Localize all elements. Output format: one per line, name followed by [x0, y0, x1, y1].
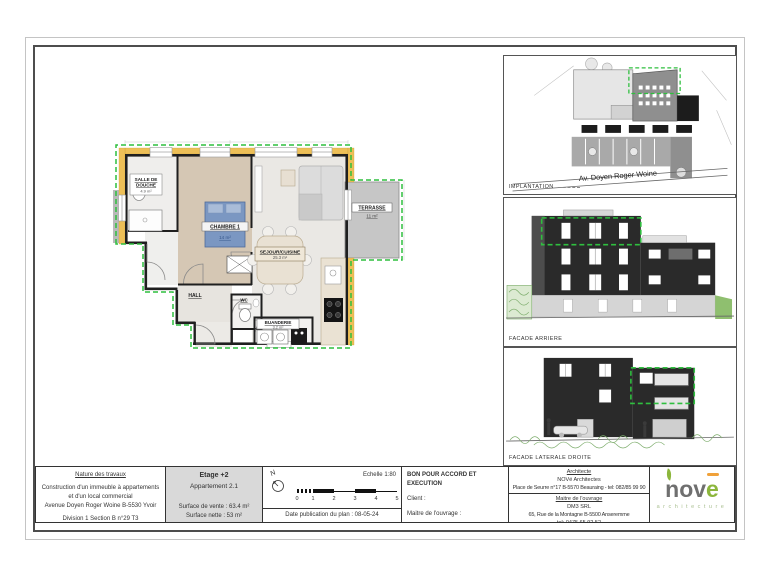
title-block: Nature des travaux Construction d'un imm…	[35, 466, 735, 523]
nature-line: Avenue Doyen Roger Woine B-5530 Yvoir	[38, 502, 163, 511]
facade-arriere-drawing	[504, 198, 736, 329]
room-name: DOUCHE	[136, 183, 156, 188]
room-area: 11 m²	[366, 214, 378, 219]
room-name: BUANDERIE	[265, 320, 292, 325]
street-name-label: Av. Doyen Roger Woine	[578, 169, 657, 183]
apartment-number: Appartement 2.1	[168, 482, 260, 492]
facade-laterale-box: FACADE LATERALE DROITE	[503, 347, 737, 466]
room-label-buanderie: BUANDERIE 3.2 m²	[257, 319, 299, 330]
scale-label: Echelle 1:80	[363, 471, 396, 480]
vegetation	[715, 295, 732, 319]
plan-publication-date: Date publication du plan : 08-05-24	[263, 508, 401, 522]
sheet-frame: SALLE DE DOUCHE 4.9 m² CHAMBRE 1 14 m² S…	[33, 45, 737, 532]
compass-icon	[270, 478, 285, 493]
laundry-machines	[257, 328, 307, 344]
floor-title: Etage +2	[168, 471, 260, 482]
logo-wordmark: nove	[665, 478, 719, 501]
title-block-approval: BON POUR ACCORD ET EXECUTION Client : Ma…	[402, 467, 509, 522]
room-label-wc: WC	[240, 298, 248, 303]
room-area: 4.9 m²	[140, 189, 152, 194]
architect-contact: Architecte NOVé Architectes Place de Seu…	[509, 467, 649, 494]
owner-label: Maitre de l'ouvrage :	[407, 510, 503, 519]
cooktop	[324, 298, 343, 322]
macron-bar-icon	[707, 473, 719, 477]
room-label-hall: HALL	[188, 293, 201, 299]
architect-address: Place de Seurre n°17 B-5570 Beauraing - …	[511, 485, 647, 493]
title-block-contacts: Architecte NOVé Architectes Place de Seu…	[509, 467, 650, 522]
nature-title: Nature des travaux	[38, 471, 163, 480]
kitchen-counter	[321, 258, 346, 345]
client-label: Client :	[407, 495, 503, 504]
room-area: 25.3 m²	[273, 255, 288, 260]
tv-cabinet	[255, 166, 262, 212]
surface-vente: Surface de vente : 63.4 m²	[168, 503, 260, 512]
room-name: TERRASSE	[358, 206, 386, 212]
title-block-scale: N Echelle 1:80 0 1 2 3	[263, 467, 402, 522]
logo-text: nov	[665, 476, 706, 502]
plan-sheet: SALLE DE DOUCHE 4.9 m² CHAMBRE 1 14 m² S…	[25, 37, 745, 540]
sofa	[299, 166, 343, 220]
room-area: 14 m²	[219, 235, 231, 240]
room-name: CHAMBRE 1	[210, 225, 240, 231]
facade-laterale-drawing	[504, 348, 736, 449]
owner-name: DM3 SRL	[511, 504, 647, 512]
coffee-table	[281, 170, 295, 186]
logo-text-e: e	[706, 476, 719, 502]
logo-subtitle: architecture	[657, 503, 728, 511]
title-block-nature-des-travaux: Nature des travaux Construction d'un imm…	[36, 467, 166, 522]
owner-address: 65, Rue de la Montagne B-5500 Anseremme	[511, 512, 647, 520]
architect-title: Architecte	[511, 469, 647, 477]
room-name: SALLE DE	[135, 177, 158, 182]
scale-numbers: 0 1 2 3 4 5	[297, 495, 397, 503]
room-label-salle-de-douche: SALLE DE DOUCHE 4.9 m²	[130, 174, 162, 195]
room-area: 3.2 m²	[273, 326, 284, 330]
room-label-sejour: SEJOUR/CUISINE 25.3 m²	[255, 247, 305, 261]
cadastre-reference: Division 1 Section B n°29 T3	[38, 515, 163, 522]
terrasse-floor	[345, 182, 399, 258]
scale-bar	[297, 489, 397, 493]
facade-laterale-label: FACADE LATERALE DROITE	[509, 455, 591, 461]
architect-logo: nove architecture	[650, 467, 734, 522]
title-block-etage: Etage +2 Appartement 2.1 Surface de vent…	[166, 467, 263, 522]
facade-arriere-label: FACADE ARRIERE	[509, 336, 562, 342]
nature-line: et d'un local commercial	[38, 493, 163, 502]
floor-plan-drawing: SALLE DE DOUCHE 4.9 m² CHAMBRE 1 14 m² S…	[105, 140, 405, 360]
site-detail-row	[582, 125, 692, 133]
implantation-box: Av. Doyen Roger Woine IMPLANTATION	[503, 55, 737, 195]
owner-title: Maitre de l'ouvrage	[511, 496, 647, 504]
implantation-label: IMPLANTATION	[509, 184, 580, 190]
architect-name: NOVé Architectes	[511, 477, 647, 485]
owner-contact: Maitre de l'ouvrage DM3 SRL 65, Rue de l…	[509, 494, 649, 522]
owner-tel: tel: 0475 65 92 52	[511, 520, 647, 522]
site-plan-drawing: Av. Doyen Roger Woine	[504, 56, 736, 194]
nature-line: Construction d'un immeuble à appartement…	[38, 484, 163, 493]
balconies	[653, 374, 689, 437]
parking-area	[572, 137, 671, 167]
facade-arriere-box: FACADE ARRIERE	[503, 197, 737, 347]
approval-title: BON POUR ACCORD ET EXECUTION	[407, 471, 503, 489]
surface-nette: Surface nette : 53 m²	[168, 512, 260, 521]
